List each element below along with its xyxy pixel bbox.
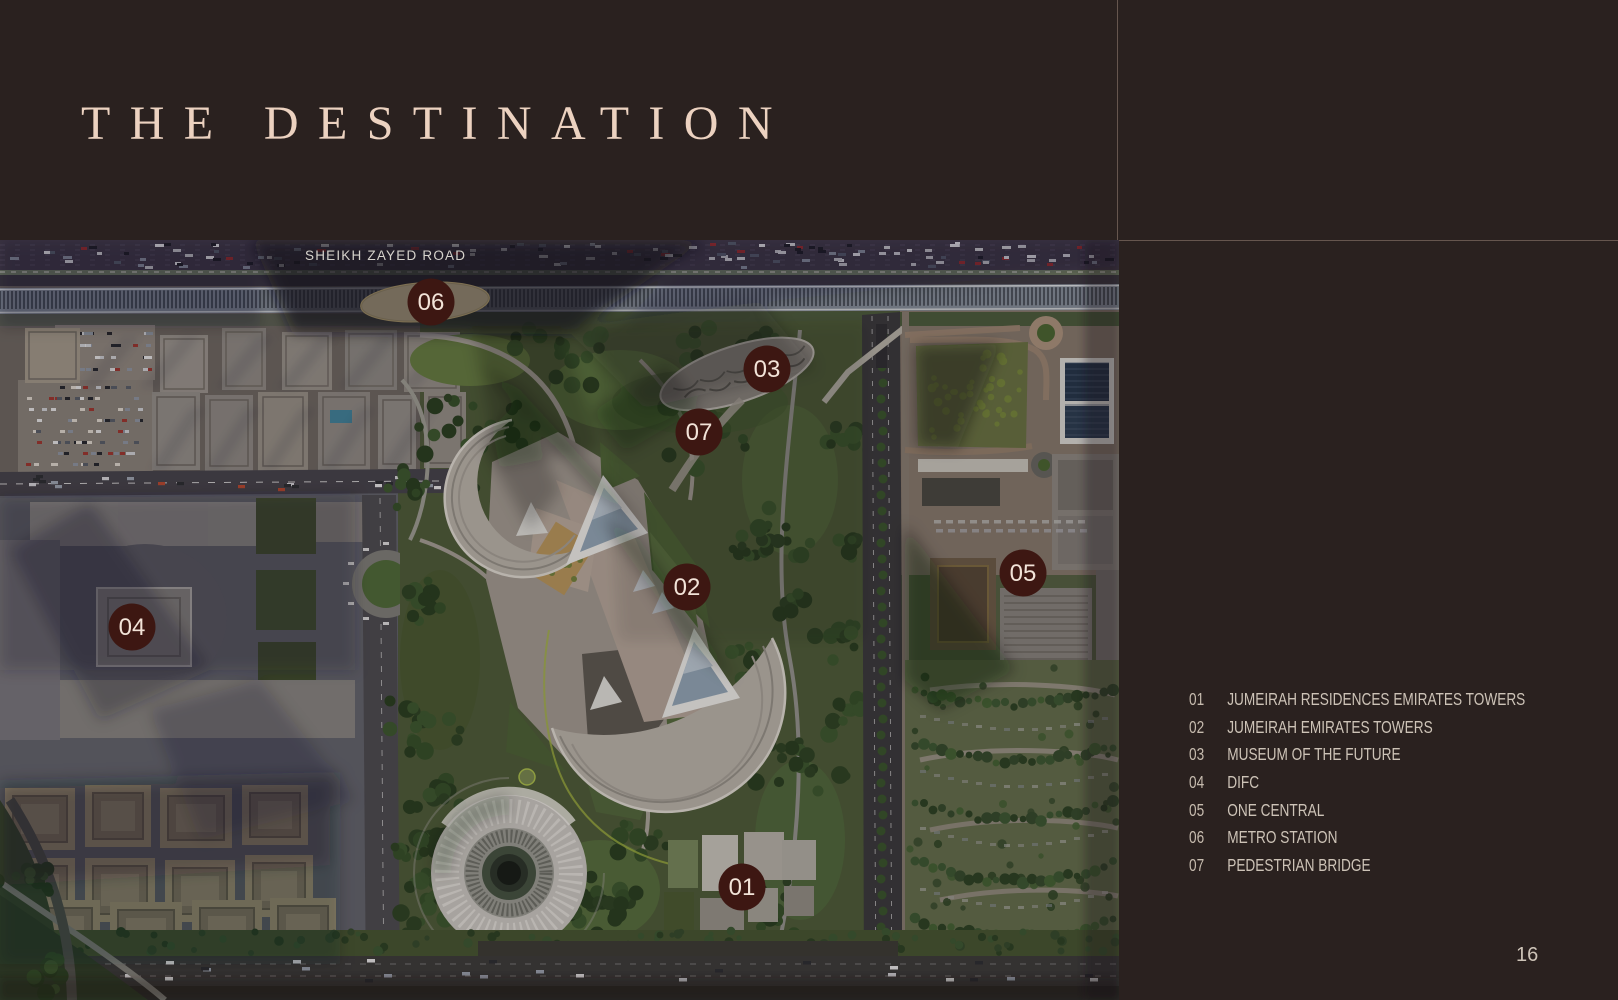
svg-text:SHEIKH ZAYED ROAD: SHEIKH ZAYED ROAD xyxy=(305,248,466,263)
svg-text:07: 07 xyxy=(686,419,713,446)
svg-text:01: 01 xyxy=(729,874,756,901)
svg-text:03: 03 xyxy=(754,356,781,383)
svg-text:05: 05 xyxy=(1010,560,1037,587)
svg-text:04: 04 xyxy=(119,614,146,641)
svg-text:02: 02 xyxy=(674,574,701,601)
svg-text:06: 06 xyxy=(418,289,445,316)
